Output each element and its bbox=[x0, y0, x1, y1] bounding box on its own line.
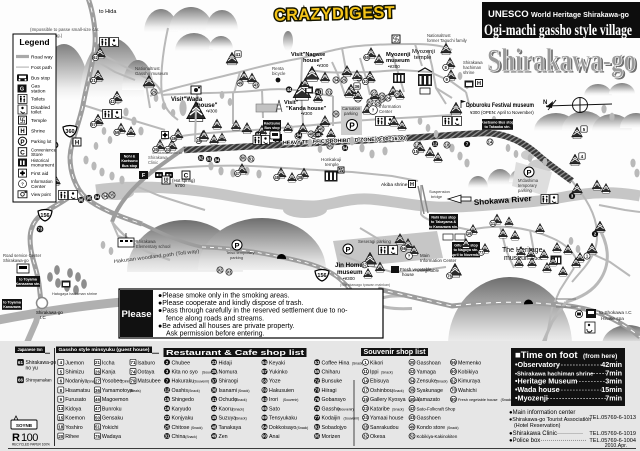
svg-text:P: P bbox=[526, 168, 531, 177]
svg-text:32: 32 bbox=[410, 369, 415, 374]
svg-text:Temple: Temple bbox=[31, 118, 47, 124]
svg-text:Toilets: Toilets bbox=[31, 97, 45, 103]
svg-text:41: 41 bbox=[212, 397, 217, 402]
svg-text:Gallery Kyosya: Gallery Kyosya bbox=[370, 397, 406, 403]
svg-text:Yamaai house: Yamaai house bbox=[370, 416, 404, 422]
svg-text:Ebisuya: Ebisuya bbox=[370, 379, 389, 385]
svg-text:Shirakawa-go: Shirakawa-go bbox=[3, 258, 29, 263]
svg-text:Yamaga: Yamaga bbox=[417, 370, 436, 376]
svg-text:24: 24 bbox=[386, 96, 391, 101]
svg-text:42: 42 bbox=[110, 99, 115, 104]
svg-text:no yu: no yu bbox=[26, 366, 38, 372]
svg-text:···TEL.05769-6-1013: ···TEL.05769-6-1013 bbox=[584, 415, 636, 421]
svg-text:65: 65 bbox=[328, 144, 333, 149]
svg-text:Gensaku: Gensaku bbox=[102, 416, 123, 422]
svg-text:Chitose: Chitose bbox=[172, 425, 190, 431]
svg-text:22: 22 bbox=[165, 415, 170, 420]
svg-text:•¥300: •¥300 bbox=[343, 276, 355, 281]
svg-text:•¥300: •¥300 bbox=[317, 63, 329, 68]
svg-text:49: 49 bbox=[316, 132, 321, 137]
svg-text:Yukinko: Yukinko bbox=[269, 370, 288, 376]
svg-text:Kaetsuno: Kaetsuno bbox=[121, 159, 138, 163]
svg-text:parking: parking bbox=[344, 111, 358, 116]
svg-text:36: 36 bbox=[355, 84, 360, 89]
svg-text:Center: Center bbox=[31, 184, 46, 190]
svg-text:57: 57 bbox=[262, 369, 267, 374]
svg-text:(Snack): (Snack) bbox=[235, 398, 247, 402]
svg-text:156: 156 bbox=[317, 273, 326, 279]
svg-text:61: 61 bbox=[18, 360, 23, 365]
svg-text:•¥300: •¥300 bbox=[206, 109, 218, 114]
svg-text:79: 79 bbox=[131, 379, 136, 384]
svg-text:Matsubee: Matsubee bbox=[137, 379, 160, 385]
svg-text:60: 60 bbox=[451, 369, 456, 374]
svg-text:25: 25 bbox=[165, 424, 170, 429]
svg-text:42: 42 bbox=[410, 406, 415, 411]
svg-text:62: 62 bbox=[93, 55, 98, 60]
svg-text:Nomura: Nomura bbox=[219, 370, 238, 376]
svg-text:(Snack): (Snack) bbox=[232, 407, 244, 411]
svg-text:fence along roads and streams.: fence along roads and streams. bbox=[166, 315, 264, 322]
svg-text:38: 38 bbox=[298, 175, 303, 180]
svg-text:81: 81 bbox=[315, 424, 320, 429]
svg-text:77: 77 bbox=[479, 250, 484, 255]
svg-text:Yamazato: Yamazato bbox=[417, 397, 441, 403]
svg-text:?: ? bbox=[408, 254, 411, 259]
svg-text:Hiiragi: Hiiragi bbox=[322, 388, 337, 394]
svg-text:(Snack): (Snack) bbox=[188, 389, 200, 393]
svg-text:90: 90 bbox=[262, 434, 267, 439]
svg-text:78: 78 bbox=[315, 406, 320, 411]
svg-text:parking: parking bbox=[230, 255, 243, 260]
svg-text:toilet: toilet bbox=[31, 110, 42, 116]
svg-text:26: 26 bbox=[95, 369, 100, 374]
svg-text:Kimuraya: Kimuraya bbox=[458, 379, 480, 385]
svg-text:former Taguchi family: former Taguchi family bbox=[427, 38, 468, 43]
svg-text:(Snack): (Snack) bbox=[238, 389, 250, 393]
svg-text:Souvenir shop list: Souvenir shop list bbox=[364, 349, 427, 356]
svg-text:Parking lot: Parking lot bbox=[31, 139, 52, 144]
svg-text:Japanese Inn: Japanese Inn bbox=[18, 347, 43, 352]
svg-text:Gobansyo: Gobansyo bbox=[322, 397, 346, 403]
svg-text:67: 67 bbox=[362, 262, 367, 267]
svg-text:house: house bbox=[402, 272, 415, 277]
svg-text:●Main information center: ●Main information center bbox=[509, 410, 575, 416]
svg-text:Gassho so: Gassho so bbox=[166, 151, 182, 155]
svg-text:Hatogaya hachiman shrine: Hatogaya hachiman shrine bbox=[52, 292, 97, 296]
svg-text:15: 15 bbox=[165, 397, 170, 402]
svg-text:Kita no syo: Kita no syo bbox=[172, 370, 198, 376]
svg-text:●Pass through carefully in the: ●Pass through carefully in the reserved … bbox=[158, 308, 348, 315]
svg-text:2010.Apr.: 2010.Apr. bbox=[605, 443, 627, 449]
svg-text:59: 59 bbox=[115, 130, 120, 135]
svg-text:14: 14 bbox=[363, 378, 368, 383]
svg-text:Foot path: Foot path bbox=[31, 65, 52, 71]
svg-text:Tensyukaku: Tensyukaku bbox=[269, 416, 297, 422]
svg-text:39: 39 bbox=[410, 388, 415, 393]
svg-text:Nodaniya: Nodaniya bbox=[65, 379, 87, 385]
svg-text:35: 35 bbox=[212, 369, 217, 374]
svg-text:Yoshiro: Yoshiro bbox=[65, 425, 83, 431]
svg-text:41: 41 bbox=[316, 90, 321, 95]
svg-text:Kondo store: Kondo store bbox=[417, 425, 446, 431]
svg-text:to Toyama: to Toyama bbox=[3, 301, 22, 305]
svg-text:20: 20 bbox=[58, 434, 63, 439]
svg-text:H: H bbox=[20, 129, 24, 135]
svg-text:Syakunage: Syakunage bbox=[417, 388, 444, 394]
svg-text:Anai: Anai bbox=[269, 434, 280, 440]
svg-text:Kaetsuno: Kaetsuno bbox=[264, 122, 281, 126]
svg-text:Yokichi: Yokichi bbox=[102, 425, 119, 431]
svg-text:34: 34 bbox=[103, 194, 108, 199]
svg-text:Kanazawa: Kanazawa bbox=[3, 305, 21, 309]
svg-text:92: 92 bbox=[368, 100, 373, 105]
svg-text:46: 46 bbox=[95, 397, 100, 402]
svg-text:Shingedo: Shingedo bbox=[172, 397, 194, 403]
svg-text:(Snack): (Snack) bbox=[392, 389, 404, 393]
svg-text:C: C bbox=[20, 149, 25, 156]
svg-text:36: 36 bbox=[95, 388, 100, 393]
svg-text:156: 156 bbox=[40, 213, 49, 219]
svg-text:Historical: Historical bbox=[31, 158, 49, 163]
svg-text:38: 38 bbox=[212, 388, 217, 393]
svg-text:Yamamotoya: Yamamotoya bbox=[102, 388, 133, 394]
svg-text:21: 21 bbox=[95, 360, 100, 365]
svg-text:76: 76 bbox=[315, 397, 320, 402]
svg-text:monument: monument bbox=[31, 163, 55, 169]
svg-text:(Snack): (Snack) bbox=[392, 407, 404, 411]
svg-text:48: 48 bbox=[212, 424, 217, 429]
svg-text:Sobadojyo: Sobadojyo bbox=[322, 425, 347, 431]
svg-text:15: 15 bbox=[58, 415, 63, 420]
svg-text:43: 43 bbox=[410, 415, 415, 420]
svg-text:Kataribe: Kataribe bbox=[370, 406, 390, 412]
svg-text:Yosobee: Yosobee bbox=[102, 379, 122, 385]
svg-text:?: ? bbox=[21, 181, 24, 186]
svg-text:11: 11 bbox=[363, 369, 368, 374]
svg-text:Kanja: Kanja bbox=[102, 370, 116, 376]
svg-text:81: 81 bbox=[249, 157, 254, 162]
svg-text:Shrine: Shrine bbox=[31, 129, 45, 135]
svg-text:49: 49 bbox=[171, 136, 176, 141]
svg-text:World Heritage Shirakawa-go: World Heritage Shirakawa-go bbox=[531, 10, 629, 19]
svg-text:(Snack): (Snack) bbox=[447, 426, 459, 430]
svg-text:59: 59 bbox=[262, 388, 267, 393]
svg-text:Kobikiya-Kakinokiten: Kobikiya-Kakinokiten bbox=[417, 434, 458, 439]
svg-text:SOYNB: SOYNB bbox=[16, 423, 33, 428]
svg-text:CRAZYDIGEST: CRAZYDIGEST bbox=[274, 3, 395, 24]
svg-text:H: H bbox=[477, 81, 481, 87]
svg-text:P: P bbox=[345, 245, 350, 254]
svg-text:to Hida: to Hida bbox=[99, 9, 117, 15]
svg-text:76: 76 bbox=[447, 273, 452, 278]
svg-text:•¥300: •¥300 bbox=[301, 111, 313, 116]
svg-text:82: 82 bbox=[199, 156, 204, 161]
svg-text:Rihee: Rihee bbox=[65, 434, 79, 440]
svg-text:58: 58 bbox=[262, 378, 267, 383]
svg-text:Fresh vegetable house: Fresh vegetable house bbox=[458, 397, 498, 402]
svg-text:to Toyama: to Toyama bbox=[19, 278, 38, 282]
svg-text:32: 32 bbox=[363, 434, 368, 439]
svg-text:Dokkoisayo: Dokkoisayo bbox=[269, 425, 296, 431]
svg-text:43: 43 bbox=[254, 83, 259, 88]
svg-text:Road way: Road way bbox=[31, 54, 53, 60]
svg-text:37: 37 bbox=[212, 378, 217, 383]
svg-text:45: 45 bbox=[319, 127, 324, 132]
svg-text:Shimizu: Shimizu bbox=[65, 370, 84, 376]
svg-text:Restaurant & Cafe shop list: Restaurant & Cafe shop list bbox=[166, 350, 305, 357]
svg-text:●Be advised all houses are pri: ●Be advised all houses are private prope… bbox=[158, 323, 294, 330]
svg-text:41: 41 bbox=[236, 52, 241, 57]
svg-text:94: 94 bbox=[95, 195, 100, 200]
svg-text:72: 72 bbox=[315, 378, 320, 383]
svg-text:Keyaki: Keyaki bbox=[269, 360, 285, 366]
svg-text:Bunroku: Bunroku bbox=[102, 406, 122, 412]
svg-text:Clinic: Clinic bbox=[148, 160, 158, 165]
svg-text:15: 15 bbox=[413, 149, 418, 154]
svg-text:96: 96 bbox=[79, 198, 84, 203]
svg-text:Juemon: Juemon bbox=[65, 360, 84, 366]
svg-text:19: 19 bbox=[467, 231, 472, 236]
svg-text:12: 12 bbox=[165, 388, 170, 393]
svg-text:28: 28 bbox=[363, 424, 368, 429]
svg-text:•¥300: •¥300 bbox=[388, 64, 400, 69]
svg-text:48: 48 bbox=[274, 175, 279, 180]
svg-text:Hakuraku: Hakuraku bbox=[172, 379, 195, 385]
svg-text:¥700: ¥700 bbox=[175, 183, 185, 188]
svg-text:First aid: First aid bbox=[31, 171, 49, 177]
svg-text:(Shirakawago tyawan mainkan): (Shirakawago tyawan mainkan) bbox=[340, 283, 390, 287]
svg-text:49: 49 bbox=[410, 424, 415, 429]
svg-text:51: 51 bbox=[95, 425, 100, 430]
svg-text:Zen: Zen bbox=[219, 434, 228, 440]
svg-text:85: 85 bbox=[315, 434, 320, 439]
svg-text:Legend: Legend bbox=[19, 37, 49, 47]
svg-text:H: H bbox=[410, 182, 414, 188]
svg-text:•Myozenji: •Myozenji bbox=[515, 393, 548, 402]
svg-text:34: 34 bbox=[334, 78, 339, 83]
svg-text:(Souvenir): (Souvenir) bbox=[283, 398, 299, 402]
svg-text:Nohi &: Nohi & bbox=[124, 155, 136, 159]
svg-text:(Snack): (Snack) bbox=[191, 426, 203, 430]
svg-text:49: 49 bbox=[238, 81, 243, 86]
svg-text:(Hotel Reservation): (Hotel Reservation) bbox=[514, 423, 561, 429]
svg-text:45: 45 bbox=[212, 415, 217, 420]
svg-text:Sato: Sato bbox=[269, 406, 280, 412]
svg-text:to Shokawa I.C: to Shokawa I.C bbox=[599, 310, 632, 316]
svg-text:Bus stop: Bus stop bbox=[31, 76, 50, 82]
svg-text:Irori: Irori bbox=[269, 397, 278, 403]
svg-text:52: 52 bbox=[410, 434, 415, 439]
svg-text:to Takaoka stn.: to Takaoka stn. bbox=[485, 125, 511, 129]
svg-text:Kikori: Kikori bbox=[370, 360, 383, 366]
svg-text:(Impossible to passe small-siz: (Impossible to passe small-size car. bbox=[30, 27, 99, 32]
svg-text:64: 64 bbox=[343, 146, 348, 151]
svg-text:64: 64 bbox=[297, 133, 302, 138]
svg-text:35: 35 bbox=[110, 193, 115, 198]
svg-text:Kodaijin: Kodaijin bbox=[322, 416, 341, 422]
svg-text:12: 12 bbox=[433, 142, 438, 147]
svg-text:(from here): (from here) bbox=[583, 353, 617, 360]
svg-text:Center: Center bbox=[379, 109, 393, 114]
svg-text:54: 54 bbox=[262, 360, 267, 365]
svg-text:bridge: bridge bbox=[431, 194, 443, 199]
svg-text:station: station bbox=[31, 89, 46, 95]
svg-text:74: 74 bbox=[131, 369, 136, 374]
svg-text:Gasshoen: Gasshoen bbox=[417, 416, 441, 422]
svg-text:to Nagoya stn.: to Nagoya stn. bbox=[454, 248, 479, 252]
svg-text:Ootaya: Ootaya bbox=[137, 370, 154, 376]
svg-text:75: 75 bbox=[95, 434, 100, 439]
svg-text:Bus stop: Bus stop bbox=[122, 164, 138, 168]
svg-text:21: 21 bbox=[91, 78, 96, 83]
svg-text:(Souvenir): (Souvenir) bbox=[344, 417, 360, 421]
svg-text:(Souvenir): (Souvenir) bbox=[194, 380, 210, 384]
svg-text:P: P bbox=[20, 139, 24, 146]
svg-text:N: N bbox=[543, 100, 547, 106]
svg-text:Wadaya: Wadaya bbox=[102, 434, 121, 440]
svg-text:Kaoru: Kaoru bbox=[219, 406, 233, 412]
svg-text:H: H bbox=[75, 140, 79, 146]
svg-text:31: 31 bbox=[165, 434, 170, 439]
svg-text:Elementary school: Elementary school bbox=[136, 244, 171, 249]
svg-text:Magoemon: Magoemon bbox=[102, 397, 129, 403]
svg-text:Chiharu: Chiharu bbox=[322, 370, 341, 376]
svg-text:33: 33 bbox=[212, 360, 217, 365]
svg-text:34: 34 bbox=[410, 378, 415, 383]
svg-text:Sanrakudou: Sanrakudou bbox=[370, 425, 399, 431]
svg-text:●Police box···················: ●Police box······················· bbox=[509, 438, 586, 444]
svg-text:29: 29 bbox=[342, 78, 347, 83]
svg-text:Doburoku Festival museum: Doburoku Festival museum bbox=[466, 102, 534, 109]
svg-text:Karyudo: Karyudo bbox=[172, 406, 192, 412]
svg-text:24: 24 bbox=[363, 415, 368, 420]
svg-text:73: 73 bbox=[38, 227, 43, 232]
svg-text:Ask permission before entering: Ask permission before entering. bbox=[166, 331, 264, 338]
svg-text:47: 47 bbox=[95, 406, 100, 411]
svg-text:71: 71 bbox=[131, 360, 136, 365]
svg-text:(Souvenir): (Souvenir) bbox=[338, 407, 354, 411]
svg-text:Ogi-machi gassho style village: Ogi-machi gassho style village bbox=[484, 22, 632, 39]
svg-text:Bunsuke: Bunsuke bbox=[322, 379, 343, 385]
svg-text:55: 55 bbox=[315, 369, 320, 374]
svg-text:Hakusuien: Hakusuien bbox=[269, 388, 294, 394]
svg-text:13: 13 bbox=[58, 406, 63, 411]
svg-text:93: 93 bbox=[227, 270, 232, 275]
svg-text:83: 83 bbox=[207, 157, 212, 162]
svg-text:Nohi Bus stop: Nohi Bus stop bbox=[431, 216, 456, 220]
svg-text:(Snack): (Snack) bbox=[185, 435, 197, 439]
svg-text:Chubee: Chubee bbox=[172, 360, 191, 366]
svg-text:Suzuya: Suzuya bbox=[219, 416, 237, 422]
svg-text:(Snack): (Snack) bbox=[352, 361, 364, 365]
svg-text:Hirase spa: Hirase spa bbox=[601, 316, 624, 322]
svg-text:vegetable: vegetable bbox=[420, 268, 440, 273]
svg-text:77: 77 bbox=[315, 415, 320, 420]
svg-text:(Snack): (Snack) bbox=[381, 371, 393, 375]
svg-text:19: 19 bbox=[363, 397, 368, 402]
svg-text:Seseragi parking: Seseragi parking bbox=[358, 239, 392, 244]
svg-text:Shirakawa-go: Shirakawa-go bbox=[487, 43, 636, 79]
svg-text:temple: temple bbox=[414, 55, 431, 61]
svg-text:Sato-Folkcraft Shop: Sato-Folkcraft Shop bbox=[417, 406, 456, 411]
svg-text:museum: museum bbox=[337, 269, 363, 276]
svg-text:Morizen: Morizen bbox=[322, 434, 341, 440]
svg-text:30: 30 bbox=[334, 112, 339, 117]
svg-text:63: 63 bbox=[262, 397, 267, 402]
svg-text:62: 62 bbox=[451, 378, 456, 383]
svg-text:40: 40 bbox=[410, 397, 415, 402]
svg-text:bicycle: bicycle bbox=[272, 71, 286, 76]
svg-text:7min: 7min bbox=[605, 393, 622, 402]
svg-text:27: 27 bbox=[95, 379, 100, 384]
svg-text:23: 23 bbox=[363, 406, 368, 411]
svg-text:parking: parking bbox=[518, 188, 532, 193]
svg-text:49: 49 bbox=[212, 434, 217, 439]
svg-text:Iccha: Iccha bbox=[102, 360, 115, 366]
svg-text:Furusato: Furusato bbox=[65, 397, 86, 403]
svg-text:I.C: I.C bbox=[40, 315, 46, 320]
svg-text:360: 360 bbox=[65, 129, 74, 135]
svg-text:(Meals): (Meals) bbox=[129, 389, 140, 393]
svg-text:57: 57 bbox=[91, 122, 96, 127]
svg-text:Coffee Hina: Coffee Hina bbox=[322, 360, 350, 366]
svg-text:Bus stop: Bus stop bbox=[264, 126, 280, 130]
svg-text:●Shirakawa Clinic·············: ●Shirakawa Clinic············· bbox=[509, 431, 583, 437]
svg-text:Isanami: Isanami bbox=[219, 388, 238, 394]
svg-text:Information Center: Information Center bbox=[420, 258, 457, 263]
svg-text:temple: temple bbox=[325, 162, 339, 167]
svg-text:Kobikiya: Kobikiya bbox=[458, 370, 478, 376]
svg-text:(Snack): (Snack) bbox=[297, 426, 309, 430]
svg-text:30: 30 bbox=[410, 360, 415, 365]
svg-text:?: ? bbox=[372, 108, 375, 113]
svg-text:G: G bbox=[20, 86, 24, 92]
svg-text:Gassho style minsyuku (guest h: Gassho style minsyuku (guest house) bbox=[59, 347, 151, 352]
svg-text:Akiba shrine: Akiba shrine bbox=[381, 182, 408, 188]
svg-text:11: 11 bbox=[491, 221, 496, 226]
svg-text:Shiraogi: Shiraogi bbox=[219, 379, 238, 385]
svg-text:China: China bbox=[172, 434, 186, 440]
svg-text:10: 10 bbox=[363, 79, 368, 84]
svg-text:50: 50 bbox=[95, 415, 100, 420]
svg-text:92: 92 bbox=[218, 268, 223, 273]
svg-text:66: 66 bbox=[401, 246, 406, 251]
svg-text:Kaetsuno Bus stop: Kaetsuno Bus stop bbox=[481, 121, 515, 125]
svg-text:Gassho museum: Gassho museum bbox=[135, 71, 169, 76]
svg-text:14: 14 bbox=[488, 140, 493, 145]
svg-text:Yoze: Yoze bbox=[269, 379, 281, 385]
svg-text:●Please cooperate and kindly d: ●Please cooperate and kindly dispose of … bbox=[158, 300, 304, 307]
svg-text:April to November: April to November bbox=[450, 253, 482, 257]
svg-text:¥300 (OPEN: April to November): ¥300 (OPEN: April to November) bbox=[470, 110, 534, 115]
svg-text:Zensuke: Zensuke bbox=[417, 379, 437, 385]
svg-text:Gasshoan: Gasshoan bbox=[417, 360, 441, 366]
svg-text:Tanakaya: Tanakaya bbox=[219, 425, 242, 431]
svg-text:48: 48 bbox=[309, 132, 314, 137]
svg-text:18: 18 bbox=[58, 425, 63, 430]
svg-text:Shiroyamakan: Shiroyamakan bbox=[26, 378, 52, 384]
svg-text:●Please smoke only in the smok: ●Please smoke only in the smoking areas. bbox=[158, 293, 290, 300]
svg-text:69: 69 bbox=[262, 415, 267, 420]
svg-text:(Snack): (Snack) bbox=[436, 380, 448, 384]
svg-text:to Takayama &: to Takayama & bbox=[431, 220, 457, 224]
svg-text:Okesa: Okesa bbox=[370, 434, 385, 440]
svg-text:60: 60 bbox=[364, 55, 369, 60]
svg-text:56: 56 bbox=[451, 360, 456, 365]
svg-text:Kanazawa stn.: Kanazawa stn. bbox=[16, 282, 41, 286]
svg-text:84: 84 bbox=[215, 158, 220, 163]
